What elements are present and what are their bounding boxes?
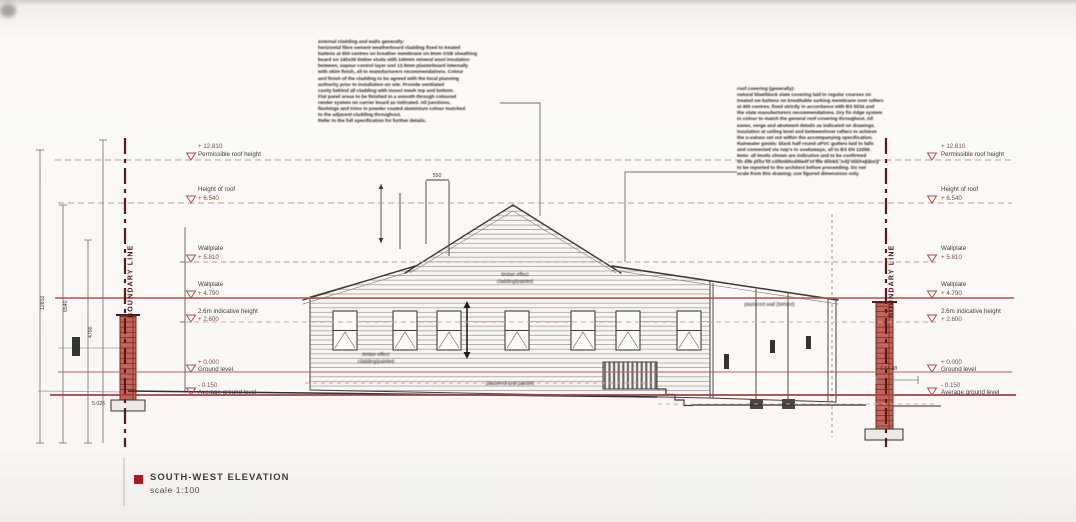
window bbox=[437, 311, 461, 350]
level-value: + 2.600 bbox=[198, 316, 219, 323]
level-label: Height of roof bbox=[198, 186, 235, 193]
level-value: + 4.790 bbox=[941, 290, 962, 297]
level-label: Ground level bbox=[198, 366, 233, 373]
level-label: Height of roof bbox=[941, 186, 978, 193]
level-value: + 4.790 bbox=[198, 290, 219, 297]
dim-number: 6540 bbox=[63, 300, 69, 312]
level-label: 2.6m indicative height bbox=[198, 308, 258, 315]
level-value: + 2.600 bbox=[941, 316, 962, 323]
level-label: Wallplate bbox=[941, 281, 967, 288]
wall-material-note: timber effect cladding/painted bbox=[336, 352, 416, 366]
window bbox=[677, 311, 701, 350]
level-label: 2.6m indicative height bbox=[941, 308, 1001, 315]
pier-left bbox=[111, 315, 145, 411]
drawing-title: SOUTH-WEST ELEVATION bbox=[150, 472, 289, 483]
level-labels-left: + 12.810 Permissible roof height Height … bbox=[198, 143, 261, 396]
gable-material-note: timber effect cladding/painted bbox=[455, 272, 575, 286]
pier-footing bbox=[865, 429, 903, 440]
dim-number: 12810 bbox=[40, 295, 46, 310]
level-value: - 0.150 bbox=[941, 382, 961, 389]
title-bullet-icon bbox=[134, 475, 143, 484]
level-label: Wallplate bbox=[198, 245, 224, 252]
annotation-block-left: external cladding and walls generally: h… bbox=[318, 40, 512, 125]
dim-number: 4790 bbox=[88, 326, 94, 338]
pier-footing bbox=[111, 400, 145, 411]
level-label: Wallplate bbox=[198, 281, 224, 288]
window bbox=[333, 311, 357, 350]
plinth-material-note: plastered and painted bbox=[420, 381, 600, 388]
gable-dimensions bbox=[379, 180, 450, 256]
level-label: Permissible roof height bbox=[941, 151, 1004, 158]
gable-width-dim: 550 bbox=[433, 173, 442, 179]
level-label: Wallplate bbox=[941, 245, 967, 252]
window bbox=[505, 311, 529, 350]
window bbox=[571, 311, 595, 350]
gate-post bbox=[72, 337, 80, 356]
level-label: Average ground level bbox=[941, 389, 999, 396]
window bbox=[616, 311, 640, 350]
level-value: + 12.810 bbox=[941, 143, 966, 150]
vent-grille bbox=[603, 362, 657, 389]
title-block: SOUTH-WEST ELEVATION scale 1:100 bbox=[134, 472, 289, 495]
level-value: + 6.540 bbox=[941, 195, 962, 202]
level-label: Average ground level bbox=[198, 389, 256, 396]
level-label: Ground level bbox=[941, 366, 976, 373]
boundary-label-right: BOUNDARY LINE bbox=[889, 244, 896, 318]
level-value: + 5.810 bbox=[941, 254, 962, 261]
level-value: + 0.000 bbox=[198, 359, 219, 366]
grade-right: 1 64 38 bbox=[880, 366, 897, 372]
elevation-linework: BOUNDARY LINE BOUNDARY LINE + 12.810 Per… bbox=[0, 0, 1076, 522]
level-labels-right: + 12.810 Permissible roof height Height … bbox=[941, 143, 1004, 396]
level-value: + 0.000 bbox=[941, 359, 962, 366]
left-site-lines bbox=[38, 337, 126, 392]
annotation-block-right: roof covering (generally): natural blue/… bbox=[737, 87, 909, 178]
boundary-label-left: BOUNDARY LINE bbox=[128, 244, 135, 318]
elevation-drawing-sheet: BOUNDARY LINE BOUNDARY LINE + 12.810 Per… bbox=[0, 0, 1076, 522]
level-label: Permissible roof height bbox=[198, 151, 261, 158]
level-value: + 12.810 bbox=[198, 143, 223, 150]
datum-left: 5.026 bbox=[92, 401, 105, 407]
level-value: + 6.540 bbox=[198, 195, 219, 202]
drawing-canvas: BOUNDARY LINE BOUNDARY LINE + 12.810 Per… bbox=[0, 0, 1076, 522]
annex-material-note: plastered wall (behind) bbox=[712, 302, 827, 309]
window bbox=[393, 311, 417, 350]
drawing-scale: scale 1:100 bbox=[150, 485, 289, 495]
level-value: + 5.810 bbox=[198, 254, 219, 261]
level-value: - 0.150 bbox=[198, 382, 218, 389]
